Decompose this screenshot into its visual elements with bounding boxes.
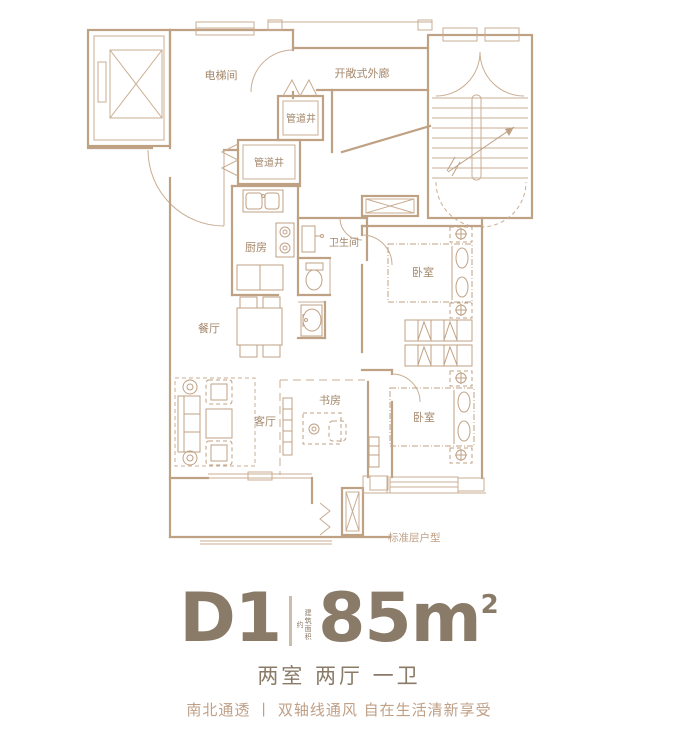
sofa [178,396,200,452]
living-room: 客厅 [175,378,276,466]
elevator-hall: 电梯间 [88,22,293,148]
armchair [206,380,232,404]
dining-label: 餐厅 [198,321,220,335]
study: 书房 [280,380,379,477]
study-label: 书房 [319,394,341,407]
floor-plan: 电梯间 开敞式外廊 [0,0,678,565]
bedroom-north-label: 卧室 [412,265,434,279]
area-prefix: 建筑面积约 [296,606,312,644]
tagline: 南北通透 丨 双轴线通风 自在生活清新享受 [0,699,678,720]
pipe-shaft-lower: 管道井 [222,140,300,184]
bedroom-south-label: 卧室 [413,410,435,424]
radiator [369,437,379,467]
desk [303,413,346,444]
area-superscript: 2 [481,592,499,618]
nightstand [450,303,472,318]
bathroom-label: 卫生间 [329,236,359,249]
dining: 餐厅 [198,297,282,357]
unit-title: D1 建筑面积约 85m 2 [0,590,678,648]
nightstand [450,448,472,463]
stove [276,223,294,257]
pipe-shaft-upper-label: 管道井 [286,112,316,125]
side-table [183,380,197,394]
nightstand [450,371,472,386]
entry-door [148,150,238,226]
living-label: 客厅 [254,414,276,428]
duct-box [362,196,418,216]
elevator-hall-label: 电梯间 [205,69,238,82]
title-divider [289,596,292,646]
basin-nook [298,302,325,338]
wardrobe [405,320,472,341]
washbasin [302,226,324,252]
nightstand [450,227,472,242]
bathroom: 卫生间 [298,218,367,295]
folding-door [320,503,330,535]
bookshelf [283,398,292,455]
armchair [206,441,232,465]
dining-table [237,297,282,357]
kitchen: 厨房 [232,186,300,295]
toilet [306,263,323,290]
balcony [170,472,486,535]
wardrobe [405,345,472,366]
outer-walls [170,178,482,544]
kitchen-sink [243,190,283,212]
open-corridor-label: 开敞式外廊 [335,66,390,80]
plan-caption: 标准层户型 [388,531,441,544]
bedroom-south: 卧室 [362,370,484,493]
bedroom-north: 卧室 [362,226,482,352]
staircase [428,28,532,227]
pipe-shaft-lower-label: 管道井 [254,156,284,169]
side-table [183,451,197,465]
unit-info: D1 建筑面积约 85m 2 两室 两厅 一卫 南北通透 丨 双轴线通风 自在生… [0,590,678,720]
area-value: 85m [318,590,480,648]
layout-summary: 两室 两厅 一卫 [0,660,678,690]
coffee-table [206,409,232,438]
kitchen-label: 厨房 [245,241,267,254]
equipment-platform [342,488,363,535]
unit-code: D1 [179,590,281,648]
fridge [237,265,283,290]
floor-plan-page: 电梯间 开敞式外廊 [0,0,678,734]
elevator-shaft [88,30,170,146]
